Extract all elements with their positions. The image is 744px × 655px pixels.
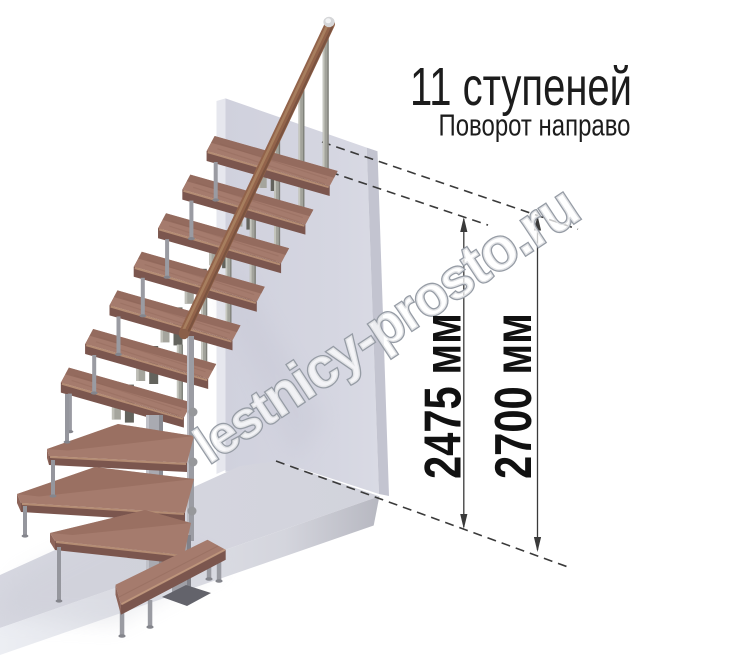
svg-text:Поворот направо: Поворот направо — [439, 109, 631, 143]
svg-text:2475 мм: 2475 мм — [414, 313, 472, 479]
svg-text:2700 мм: 2700 мм — [485, 313, 543, 479]
